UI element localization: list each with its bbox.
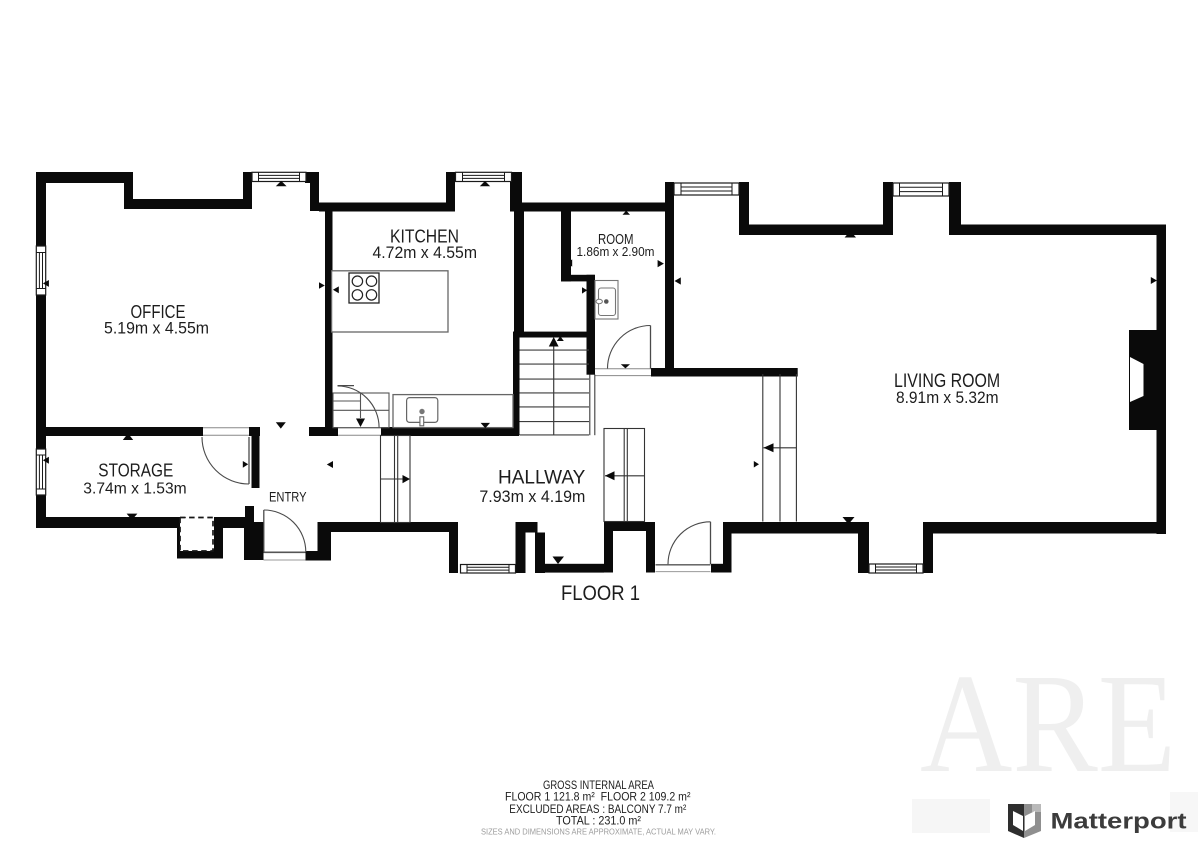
svg-text:8.91m x 5.32m: 8.91m x 5.32m [896, 388, 999, 407]
svg-text:HALLWAY: HALLWAY [498, 467, 586, 488]
svg-text:7.93m x 4.19m: 7.93m x 4.19m [479, 487, 585, 506]
svg-text:FLOOR 1: FLOOR 1 [561, 582, 640, 605]
svg-text:1.86m x 2.90m: 1.86m x 2.90m [577, 245, 655, 259]
svg-text:ENTRY: ENTRY [269, 490, 307, 505]
svg-text:TOTAL : 231.0 m²: TOTAL : 231.0 m² [556, 813, 641, 827]
svg-text:3.74m x 1.53m: 3.74m x 1.53m [83, 480, 186, 497]
svg-text:5.19m x 4.55m: 5.19m x 4.55m [104, 319, 209, 338]
svg-text:SIZES AND DIMENSIONS ARE APPRO: SIZES AND DIMENSIONS ARE APPROXIMATE, AC… [481, 827, 716, 836]
svg-text:STORAGE: STORAGE [98, 460, 173, 481]
svg-text:Matterport: Matterport [1051, 809, 1188, 834]
svg-text:4.72m x 4.55m: 4.72m x 4.55m [373, 243, 478, 262]
svg-text:ARE: ARE [920, 644, 1176, 802]
